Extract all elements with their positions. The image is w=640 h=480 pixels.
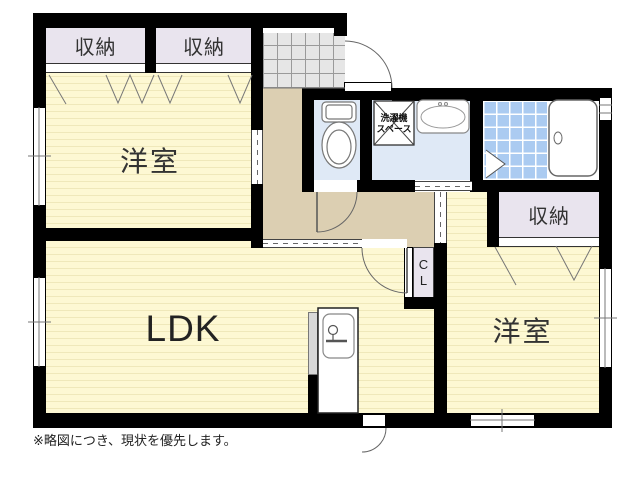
bedroom-1-label: 洋室: [80, 140, 220, 180]
closet-3-door-track: [499, 237, 599, 247]
laundry-label-line1: 洗濯機: [380, 113, 407, 124]
sliding-door-bedroom-1: [251, 130, 263, 184]
entrance-door-leaf: [344, 82, 392, 92]
sliding-door-washroom: [415, 181, 472, 191]
window-bedroom-2-side: [599, 268, 612, 368]
disclaimer-note: ※略図につき、現状を優先します。: [33, 430, 237, 449]
closet-1-door-track: [46, 63, 145, 73]
closet-cl-label: C L: [413, 247, 434, 299]
window-ldk: [33, 277, 46, 367]
wall-segment: [145, 13, 156, 73]
wall-segment: [392, 88, 612, 101]
ldk-label: LDK: [118, 308, 248, 350]
wall-segment: [334, 13, 347, 36]
wall-segment: [360, 100, 372, 192]
hallway-floor: [263, 88, 302, 248]
wall-segment: [470, 100, 483, 192]
wall-segment: [599, 88, 612, 428]
wall-segment: [487, 192, 499, 247]
window-bedroom-1: [33, 107, 46, 206]
toilet-doorway: [317, 180, 357, 192]
entrance-genkan-floor: [263, 33, 345, 88]
wall-segment: [472, 180, 599, 192]
wall-segment: [33, 13, 347, 28]
bathroom-tile: [483, 101, 547, 180]
closet-2-label: 収納: [156, 28, 252, 63]
floor-plan: 洋室 LDK 洋室 収納 収納 収納 C L 洗濯機 スペース ※略図につき、現…: [0, 0, 640, 480]
closet-2-door-track: [156, 63, 252, 73]
closet-cl-door: [404, 247, 413, 299]
laundry-space-label: 洗濯機 スペース: [372, 106, 416, 142]
wall-segment: [357, 180, 415, 192]
wall-segment: [302, 100, 314, 192]
bedroom-2-label: 洋室: [450, 310, 595, 350]
sliding-door-hall-ldk: [263, 239, 362, 248]
ldk-doorway: [362, 239, 407, 248]
window-bedroom-2-bottom: [470, 414, 535, 427]
laundry-label-line2: スペース: [377, 124, 412, 135]
closet-cl-label-line1: C: [419, 257, 428, 273]
entrance-door-arc: [345, 41, 392, 88]
closet-cl-label-line2: L: [420, 273, 427, 289]
window-bathroom: [599, 97, 612, 121]
wall-segment: [33, 228, 263, 241]
toilet-room-floor: [314, 100, 360, 180]
wall-segment: [308, 375, 318, 413]
sliding-door-bedroom-2: [434, 192, 447, 243]
closet-3-label: 収納: [499, 192, 599, 237]
kitchen-side-panel: [308, 312, 318, 375]
rear-door-arc: [362, 428, 386, 452]
closet-1-label: 収納: [46, 28, 145, 63]
rear-door-leaf: [362, 414, 386, 427]
wall-segment: [434, 243, 447, 413]
